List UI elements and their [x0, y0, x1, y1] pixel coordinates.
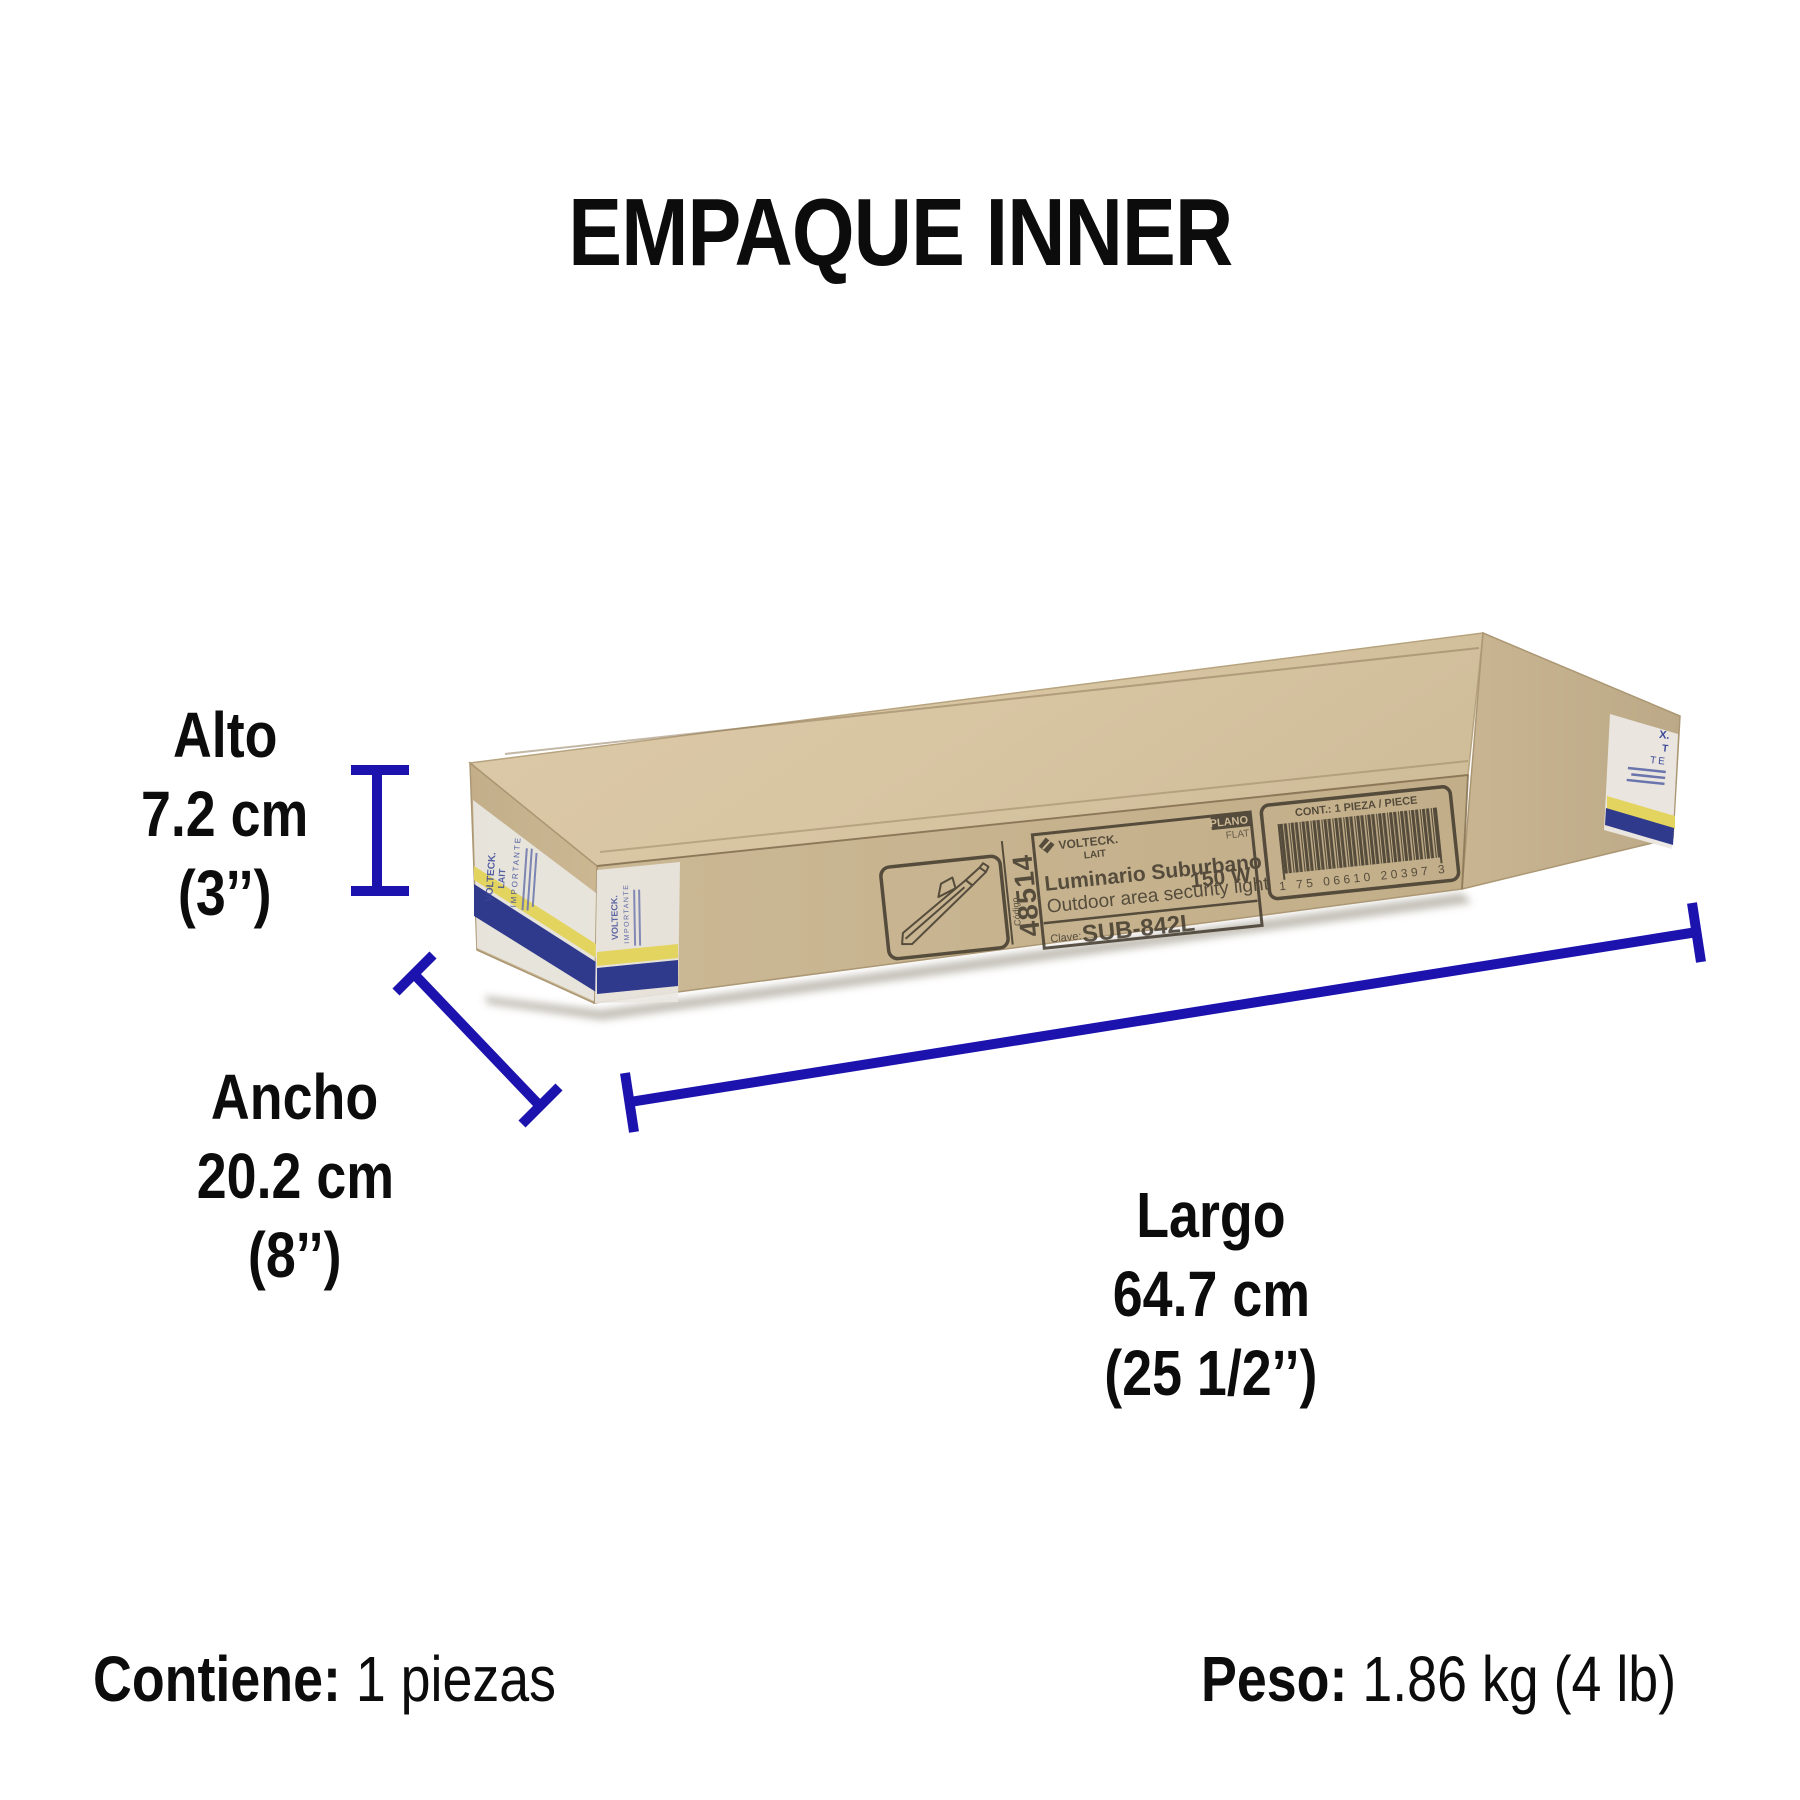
ancho-label: Ancho [211, 1058, 378, 1137]
alto-dimension-label: Alto 7.2 cm (3’’) [60, 696, 390, 933]
contains-label: Contiene: [93, 1643, 341, 1715]
ancho-dimension-label: Ancho 20.2 cm (8’’) [105, 1058, 485, 1295]
brand-sub-text: LAIT [1083, 848, 1106, 861]
front-tape-brand: VOLTECK. [609, 895, 620, 940]
right-label-frag-2: T [1661, 743, 1668, 755]
largo-label: Largo [1136, 1176, 1285, 1255]
alto-metric: 7.2 cm [141, 775, 308, 854]
right-label-frag-1: X. [1659, 729, 1671, 742]
largo-metric: 64.7 cm [1112, 1255, 1309, 1334]
packaging-spec-sheet: EMPAQUE INNER [0, 0, 1800, 1800]
clave-label: Clave: [1050, 930, 1082, 945]
largo-imperial: (25 1/2’’) [1104, 1334, 1317, 1413]
alto-imperial: (3’’) [178, 854, 272, 933]
left-tape-brand-sub: LAIT [496, 868, 507, 889]
ancho-metric: 20.2 cm [196, 1137, 393, 1216]
contains-value: 1 piezas [356, 1643, 556, 1715]
ancho-imperial: (8’’) [248, 1216, 342, 1295]
largo-dimension-label: Largo 64.7 cm (25 1/2’’) [1016, 1176, 1406, 1413]
contains-row: Contiene: 1 piezas [93, 1644, 644, 1714]
right-label-frag-3: TE [1649, 755, 1667, 768]
front-tape-note: IMPORTANTE [623, 884, 631, 944]
alto-label: Alto [173, 696, 278, 775]
weight-label: Peso: [1201, 1643, 1347, 1715]
weight-value: 1.86 kg (4 lb) [1362, 1643, 1676, 1715]
weight-row: Peso: 1.86 kg (4 lb) [1201, 1644, 1767, 1714]
